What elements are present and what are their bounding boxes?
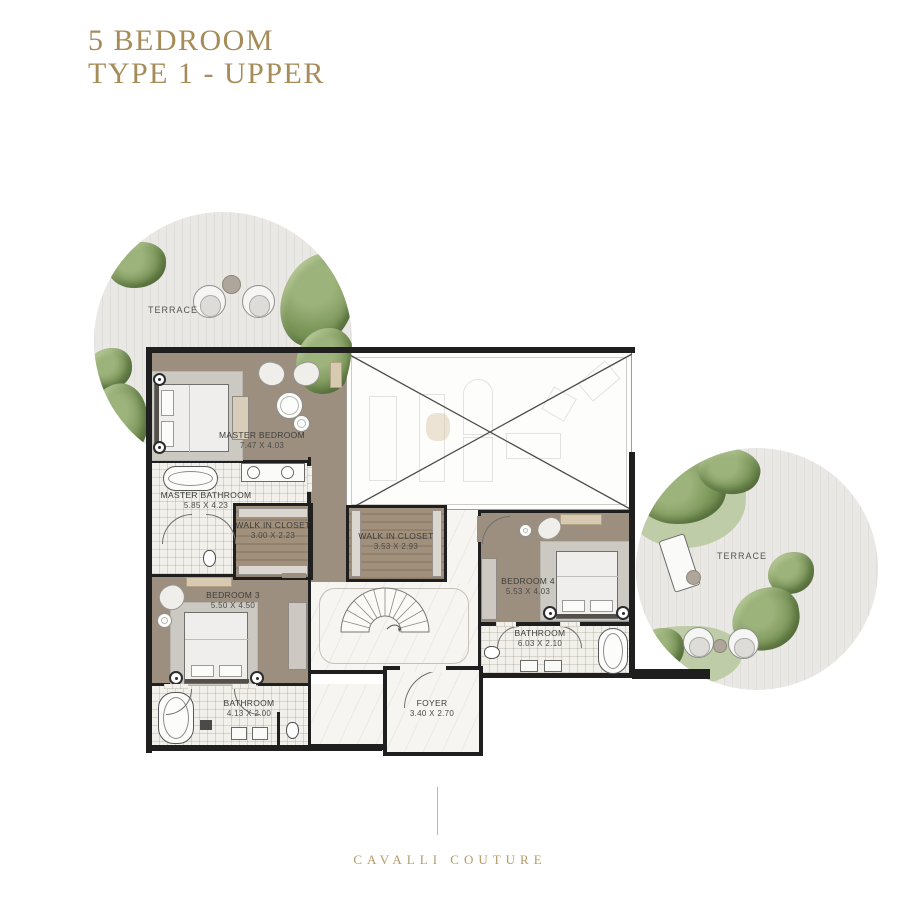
door-opening xyxy=(496,622,516,627)
sink xyxy=(281,466,294,479)
door-opening xyxy=(232,684,256,689)
door-opening xyxy=(307,466,312,492)
walk-in-closet-2-label: WALK IN CLOSET 3.53 X 2.93 xyxy=(358,531,433,552)
wall xyxy=(277,712,280,748)
wall xyxy=(311,744,383,750)
sink xyxy=(252,727,268,740)
foyer-door-opening xyxy=(400,664,446,672)
terrace-right-label: TERRACE xyxy=(717,551,767,563)
wardrobe xyxy=(481,558,497,620)
console xyxy=(330,362,342,388)
bathroom-3-label: BATHROOM 4.13 X 2.00 xyxy=(224,698,275,719)
side-table xyxy=(519,524,532,537)
speaker-icon xyxy=(169,671,183,685)
sink xyxy=(544,660,562,672)
door-opening xyxy=(164,684,188,689)
sink xyxy=(231,727,247,740)
page-title: 5 BEDROOM TYPE 1 - UPPER xyxy=(88,24,325,90)
wall xyxy=(146,347,152,753)
spiral-staircase xyxy=(337,582,433,636)
corridor xyxy=(311,460,346,584)
sink xyxy=(520,660,538,672)
toilet xyxy=(203,550,216,567)
door-opening xyxy=(560,622,580,627)
bench xyxy=(560,514,602,525)
side-table xyxy=(157,613,172,628)
floor-mat xyxy=(200,720,212,730)
bedroom-4-label: BEDROOM 4 5.53 X 4.03 xyxy=(501,576,555,597)
master-bathroom-label: MASTER BATHROOM 5.85 X 4.23 xyxy=(161,490,252,511)
wall xyxy=(311,670,385,674)
walk-in-closet-1-label: WALK IN CLOSET 3.00 X 2.23 xyxy=(235,520,310,541)
bed xyxy=(556,551,618,619)
sink xyxy=(247,466,260,479)
speaker-icon xyxy=(616,606,630,620)
foyer-label: FOYER 3.40 X 2.70 xyxy=(410,698,454,719)
x-cross xyxy=(347,353,633,511)
title-line-1: 5 BEDROOM xyxy=(88,24,325,57)
hall-corridor xyxy=(447,510,478,584)
wall xyxy=(629,452,635,678)
master-bedroom-label: MASTER BEDROOM 7.47 X 4.03 xyxy=(219,430,305,451)
door-opening xyxy=(282,573,306,578)
lounge-pod-chair xyxy=(728,628,759,659)
speaker-icon xyxy=(250,671,264,685)
lounge-pod-chair xyxy=(683,627,714,658)
wall xyxy=(146,347,635,353)
master-bed xyxy=(154,384,229,452)
brand-divider xyxy=(437,787,438,835)
bathtub xyxy=(163,466,218,491)
terrace-left-label: TERRACE xyxy=(148,305,198,317)
side-table xyxy=(713,639,727,653)
bed xyxy=(184,612,248,684)
walk-in-closet-1-room xyxy=(233,503,313,580)
wardrobe xyxy=(288,602,307,670)
toilet xyxy=(286,722,299,739)
bathroom-4-label: BATHROOM 6.03 X 2.10 xyxy=(515,628,566,649)
floorplan-page: 5 BEDROOM TYPE 1 - UPPER TERRACE TERRACE xyxy=(0,0,900,900)
speaker-icon xyxy=(543,606,557,620)
bench xyxy=(186,577,232,587)
side-table xyxy=(686,570,701,585)
void-open-below xyxy=(346,352,632,510)
side-table xyxy=(222,275,241,294)
door-opening xyxy=(477,516,482,542)
bush-icon xyxy=(94,380,154,463)
title-line-2: TYPE 1 - UPPER xyxy=(88,57,325,90)
wall xyxy=(632,669,710,679)
speaker-icon xyxy=(153,373,166,386)
brand-logo: CAVALLI COUTURE xyxy=(0,852,900,868)
bedroom-3-label: BEDROOM 3 5.50 X 4.50 xyxy=(206,590,260,611)
bush-icon xyxy=(108,242,166,288)
terrace-right xyxy=(636,448,878,690)
speaker-icon xyxy=(153,441,166,454)
bathtub xyxy=(598,628,628,674)
bath-vestibule xyxy=(311,684,383,744)
lounge-pod-chair xyxy=(242,285,275,318)
